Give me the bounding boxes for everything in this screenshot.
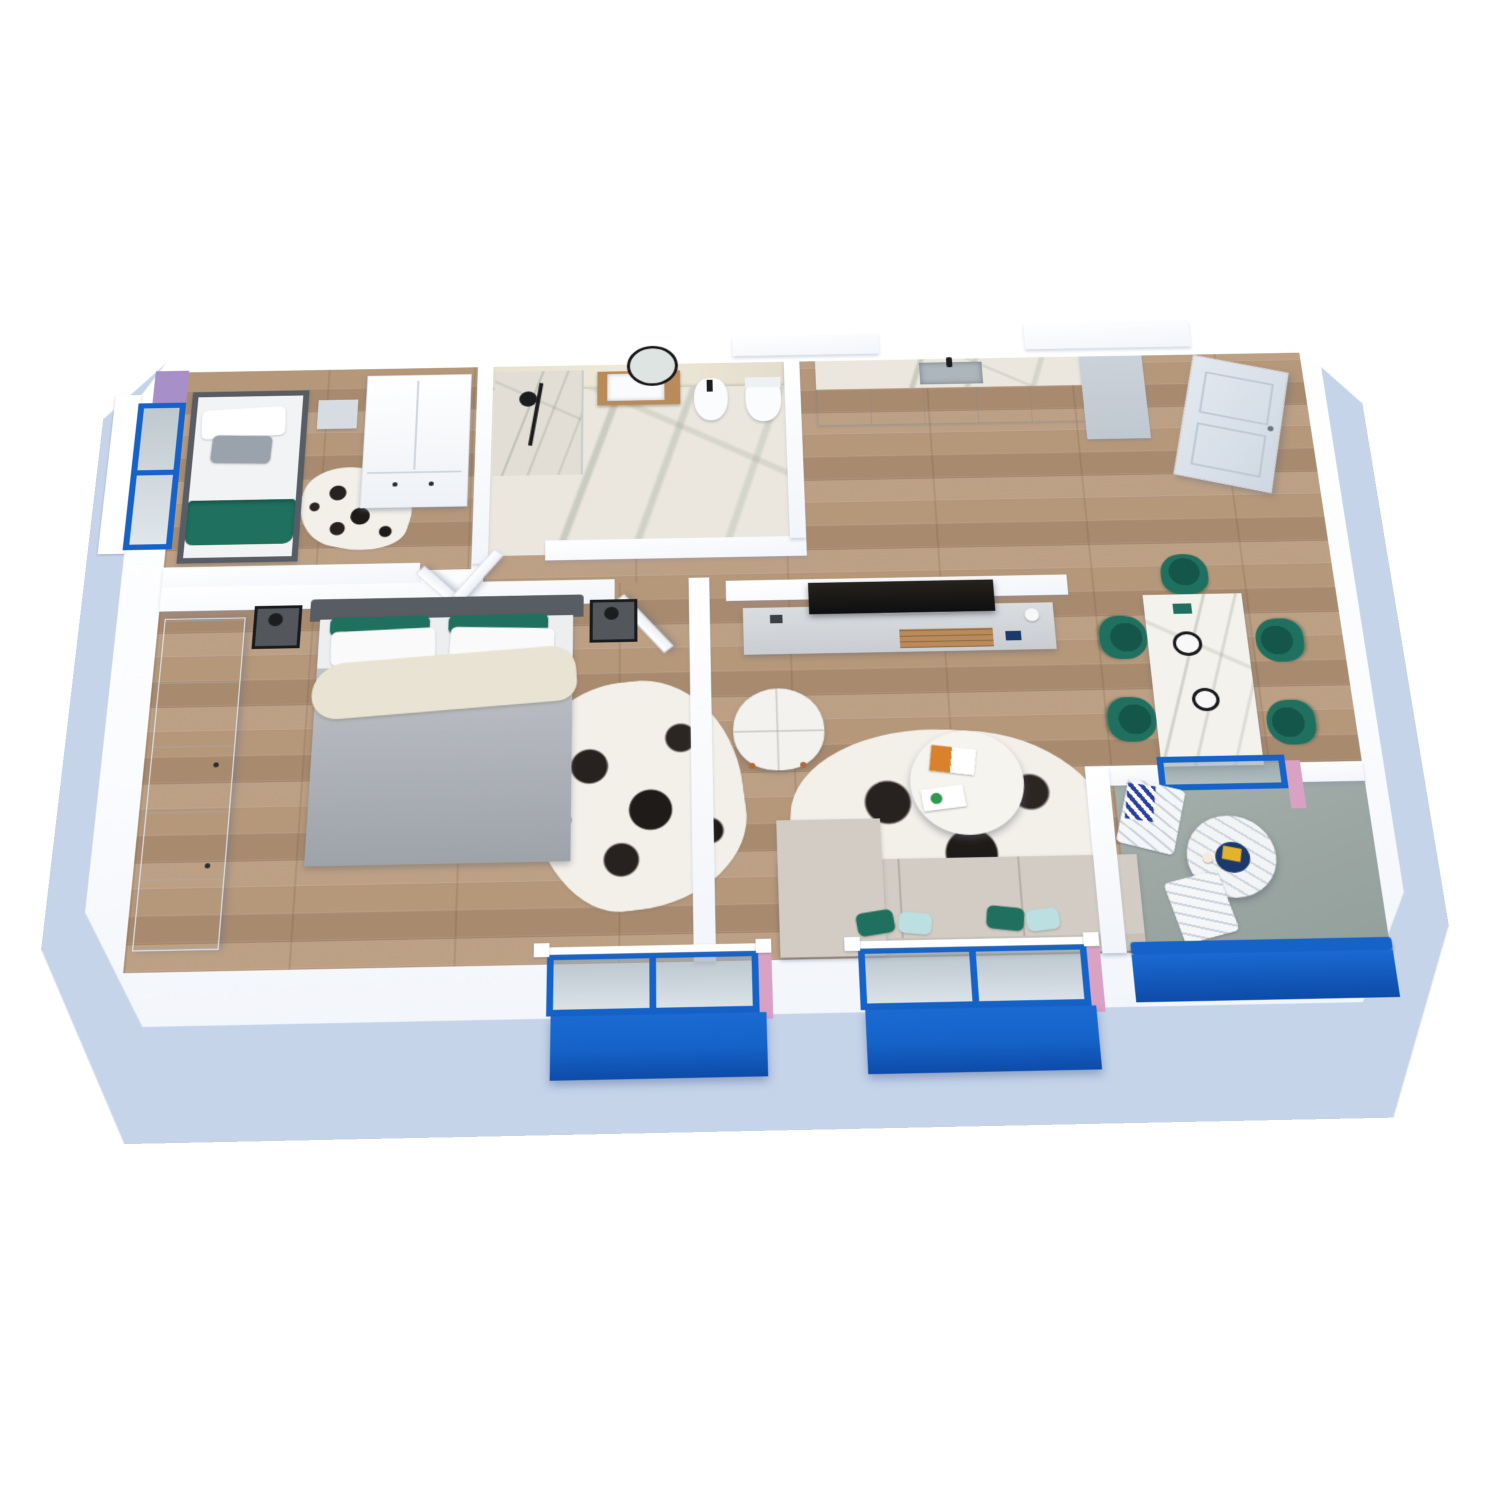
tv-console-wood-drawer [899, 628, 994, 649]
master-balcony-platform [550, 1012, 769, 1081]
table-decor-box [1172, 603, 1192, 614]
roof-step-block [732, 334, 879, 356]
window-mullion [969, 952, 979, 1002]
teal-blanket [184, 499, 296, 546]
living-balcony-platform [865, 1005, 1102, 1074]
pink-reveal [758, 949, 773, 1018]
tv [808, 579, 995, 614]
entrance-door-panel [1190, 422, 1266, 478]
armchair-leg [749, 763, 756, 769]
rail-post [844, 937, 860, 951]
wardrobe-drawers [365, 471, 461, 504]
sofa-pillow-mint [898, 911, 932, 935]
chevron-towel [1125, 783, 1156, 823]
window-mullion [649, 958, 656, 1008]
armchair-leg [800, 762, 807, 768]
kitchen-faucet [946, 357, 953, 367]
bidet-faucet [707, 380, 713, 392]
loggia-chair [1116, 777, 1186, 855]
single-bed-cushion [210, 435, 273, 463]
window-mullion [137, 470, 174, 476]
sofa-pillow-mint [1025, 907, 1062, 932]
loggia-sliding-door [1156, 755, 1288, 791]
coffee-cup [1202, 853, 1214, 863]
apartment-isometric-view [72, 339, 1421, 1028]
magazine-green-dot [930, 792, 944, 804]
kitchen-tall-cabinet [1079, 355, 1151, 439]
rail-post [1083, 932, 1100, 946]
decor-navy-box [1005, 631, 1021, 641]
entrance-door-panel [1199, 371, 1274, 425]
roof-step-block [1023, 320, 1191, 349]
door-handle [1267, 426, 1274, 432]
decor-sphere-lamp [1024, 608, 1040, 621]
sofa-pillow-teal [986, 905, 1025, 932]
rail-post [756, 939, 772, 953]
toilet-cistern [745, 377, 781, 388]
entrance-door [1173, 355, 1288, 493]
knob [205, 863, 211, 868]
wardrobe-door-seam [413, 381, 419, 470]
nightstand-master-right [590, 599, 638, 643]
decor-dark-item [770, 615, 783, 624]
wardrobe-small-bedroom [360, 374, 472, 508]
nightstand-master-left [251, 605, 302, 649]
floor-plan-3d-render [0, 0, 1500, 1500]
magazine [929, 745, 976, 775]
loggia-parapet [1131, 950, 1400, 1003]
knob [213, 762, 219, 767]
rail-post [534, 943, 550, 957]
master-balcony-window [546, 950, 760, 1017]
living-balcony-window [858, 943, 1092, 1010]
sofa-chaise [776, 818, 887, 957]
nightstand-small-bedroom [317, 400, 359, 430]
